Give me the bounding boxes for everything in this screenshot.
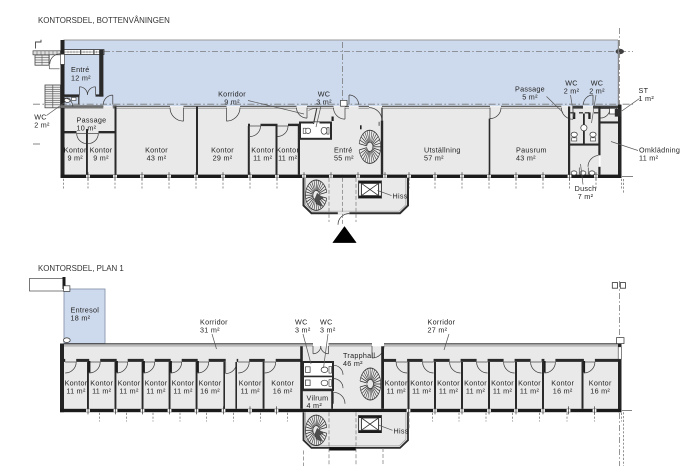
svg-text:16 m²: 16 m² bbox=[273, 386, 293, 395]
svg-text:Hiss: Hiss bbox=[394, 426, 409, 435]
svg-text:9 m²: 9 m² bbox=[224, 98, 240, 107]
svg-text:9 m²: 9 m² bbox=[67, 153, 83, 162]
svg-text:11 m²: 11 m² bbox=[119, 386, 139, 395]
svg-text:29 m²: 29 m² bbox=[213, 153, 233, 162]
svg-text:Hiss: Hiss bbox=[393, 192, 408, 201]
svg-text:KONTORSDEL, PLAN 1: KONTORSDEL, PLAN 1 bbox=[38, 264, 124, 273]
svg-text:11 m²: 11 m² bbox=[146, 386, 166, 395]
svg-text:11 m²: 11 m² bbox=[439, 386, 459, 395]
svg-text:11 m²: 11 m² bbox=[92, 386, 112, 395]
svg-text:2 m²: 2 m² bbox=[564, 87, 580, 96]
svg-text:11 m²: 11 m² bbox=[639, 153, 659, 162]
svg-text:9 m²: 9 m² bbox=[93, 153, 109, 162]
svg-text:11 m²: 11 m² bbox=[66, 386, 86, 395]
svg-text:5 m²: 5 m² bbox=[522, 93, 538, 102]
svg-text:31 m²: 31 m² bbox=[200, 326, 220, 335]
svg-text:43 m²: 43 m² bbox=[516, 153, 536, 162]
svg-text:11 m²: 11 m² bbox=[173, 386, 193, 395]
svg-text:57 m²: 57 m² bbox=[424, 153, 444, 162]
svg-text:3 m²: 3 m² bbox=[316, 98, 332, 107]
svg-text:46 m²: 46 m² bbox=[343, 359, 363, 368]
svg-text:1 m²: 1 m² bbox=[639, 94, 655, 103]
svg-text:KONTORSDEL, BOTTENVÅNINGEN: KONTORSDEL, BOTTENVÅNINGEN bbox=[38, 16, 170, 25]
svg-text:11 m²: 11 m² bbox=[253, 153, 273, 162]
svg-text:55 m²: 55 m² bbox=[334, 153, 354, 162]
svg-text:10 m²: 10 m² bbox=[77, 124, 97, 133]
svg-text:11 m²: 11 m² bbox=[520, 386, 540, 395]
svg-text:16 m²: 16 m² bbox=[200, 386, 220, 395]
svg-text:11 m²: 11 m² bbox=[493, 386, 513, 395]
svg-text:4 m²: 4 m² bbox=[307, 401, 323, 410]
svg-text:43 m²: 43 m² bbox=[147, 153, 167, 162]
svg-text:11 m²: 11 m² bbox=[241, 386, 261, 395]
svg-text:27 m²: 27 m² bbox=[428, 326, 448, 335]
svg-text:12 m²: 12 m² bbox=[71, 74, 91, 83]
svg-text:11 m²: 11 m² bbox=[466, 386, 486, 395]
svg-text:3 m²: 3 m² bbox=[320, 326, 336, 335]
svg-text:18 m²: 18 m² bbox=[71, 314, 91, 323]
svg-text:16 m²: 16 m² bbox=[590, 386, 610, 395]
svg-text:11 m²: 11 m² bbox=[412, 386, 432, 395]
svg-text:16 m²: 16 m² bbox=[553, 386, 573, 395]
svg-text:11 m²: 11 m² bbox=[278, 153, 298, 162]
svg-text:3 m²: 3 m² bbox=[295, 326, 311, 335]
svg-text:7 m²: 7 m² bbox=[578, 192, 594, 201]
svg-text:2 m²: 2 m² bbox=[34, 121, 50, 130]
svg-text:11 m²: 11 m² bbox=[387, 386, 407, 395]
svg-text:2 m²: 2 m² bbox=[589, 87, 605, 96]
